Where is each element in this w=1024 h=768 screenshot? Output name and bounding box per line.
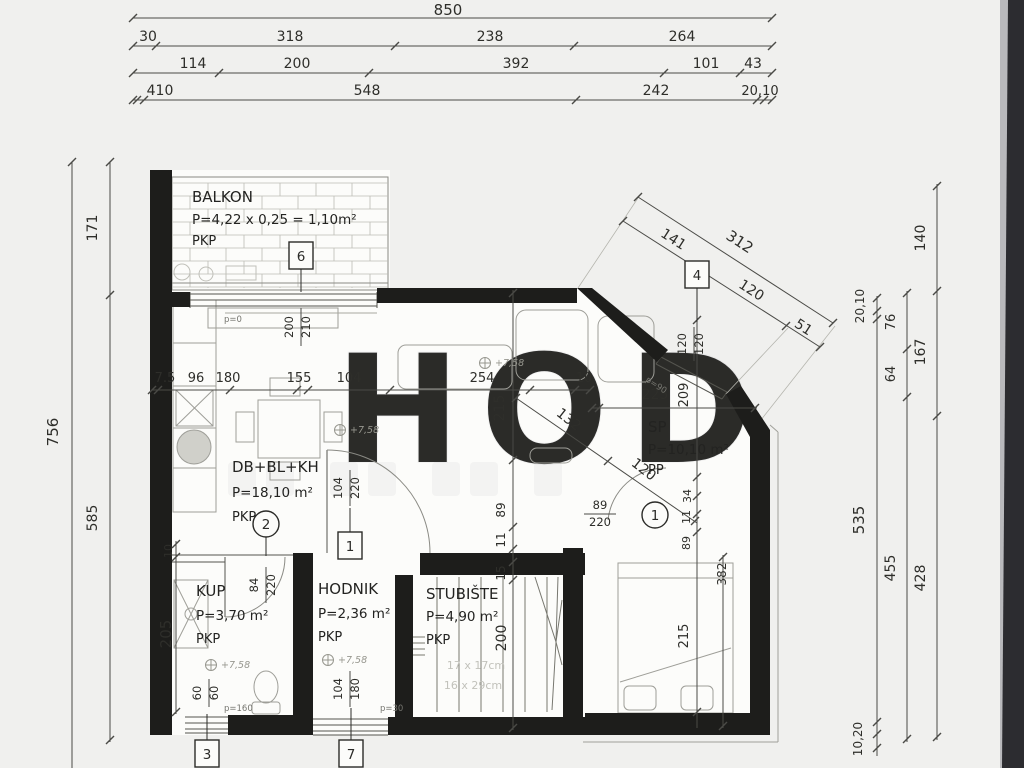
level-value: +7,58 <box>495 358 524 369</box>
wall-bottom-kup <box>228 715 313 735</box>
floor-plan-drawing: HOD <box>0 0 1024 768</box>
dim-label: 20,10 <box>741 84 778 99</box>
dim-label: 167 <box>913 339 929 366</box>
dim-label: 535 <box>850 506 868 535</box>
marker-label: 3 <box>203 747 212 763</box>
room-name: HODNIK <box>318 580 379 598</box>
dim-label: 215 <box>677 624 692 649</box>
dim-label: 15 <box>494 565 508 580</box>
door-width: 84 <box>247 578 261 593</box>
marker-label: 7 <box>347 747 356 763</box>
wall-sp-bottom <box>585 713 765 735</box>
door-width: 104 <box>331 678 345 700</box>
dim-label: 43 <box>744 56 762 72</box>
dim-label: 318 <box>277 29 304 45</box>
dim-label: 20,10 <box>853 289 867 323</box>
dim-label: 10,20 <box>851 722 865 756</box>
dim-label: 11 <box>680 510 693 524</box>
dim-label: 200 <box>494 625 510 652</box>
room-area: P=18,10 m² <box>232 485 313 501</box>
dim-label: 209 <box>677 383 692 408</box>
marker-label: 1 <box>346 539 355 555</box>
wall-top-b <box>377 288 577 303</box>
room-area: P=3,70 m² <box>196 608 268 624</box>
dim-label: 30 <box>139 29 157 45</box>
dim-label: 140 <box>913 225 929 252</box>
dim-label: 410 <box>147 83 174 99</box>
wall-left <box>150 170 172 735</box>
room-name: SP <box>648 418 667 436</box>
marker-circle-1: 1 <box>642 502 668 528</box>
dim-label: 89 <box>494 502 508 517</box>
dim-label: 215 <box>492 395 508 422</box>
dim-label: 428 <box>913 565 929 592</box>
dim-label: 455 <box>883 555 899 582</box>
room-name: DB+BL+KH <box>232 458 319 476</box>
marker-label: 1 <box>651 508 660 524</box>
door-width: 89 <box>593 498 608 512</box>
room-area: P=2,36 m² <box>318 606 390 622</box>
stair-tread-note: 16 x 29cm <box>444 679 502 692</box>
marker-circle-2: 2 <box>253 511 279 537</box>
dim-label: 238 <box>477 29 504 45</box>
dim-label: 200 <box>284 56 311 72</box>
wall-stairs-right <box>563 548 583 735</box>
marker-label: 4 <box>693 268 702 284</box>
dim-label: 242 <box>643 83 670 99</box>
dim-label: 96 <box>188 371 205 386</box>
kitchen-burner <box>177 430 211 464</box>
dim-label: 382 <box>715 563 729 586</box>
dim-label: 64 <box>884 366 899 383</box>
dim-label: 155 <box>287 371 312 386</box>
marker-label: 2 <box>262 517 271 533</box>
dim-label: 205 <box>157 620 175 649</box>
dim-label: 548 <box>354 83 381 99</box>
dim-label: 10 <box>162 544 175 558</box>
marker-label: 6 <box>297 249 306 265</box>
dim-label: 254 <box>470 371 495 386</box>
dim-label: 585 <box>85 505 101 532</box>
door-width: 104 <box>331 477 345 499</box>
dim-label: 850 <box>434 1 463 19</box>
dim-label: 89 <box>680 536 693 550</box>
dim-label: 180 <box>216 371 241 386</box>
door-height: 220 <box>589 515 611 529</box>
room-name: BALKON <box>192 188 253 206</box>
door-width: 60 <box>190 686 204 701</box>
room-tag: PP <box>648 463 664 478</box>
dim-label: 101 <box>693 56 720 72</box>
room-area: P=4,22 x 0,25 = 1,10m² <box>192 212 357 228</box>
door-width: 120 <box>675 333 689 355</box>
wall-hodnik-stairs <box>395 575 413 717</box>
door-width: 200 <box>282 316 296 338</box>
dim-label: 11 <box>494 532 508 547</box>
dim-label: 264 <box>669 29 696 45</box>
dim-label: 34 <box>681 489 694 503</box>
dim-label: 114 <box>180 56 207 72</box>
marker-box-1: 1 <box>338 532 362 559</box>
room-area: P=10,10 m² <box>648 442 729 458</box>
room-area: P=4,90 m² <box>426 609 498 625</box>
level-value: +7,58 <box>221 660 250 671</box>
wall-top-a <box>150 292 190 307</box>
scanned-floor-plan-page: HOD <box>0 0 1024 768</box>
wall-bottom-hodnik <box>388 717 585 735</box>
dim-label: 7.5 <box>155 371 176 386</box>
level-value: +7,58 <box>338 655 367 666</box>
parapet-note-p30: p=30 <box>380 704 403 714</box>
room-tag: PKP <box>426 633 450 648</box>
parapet-note-p160: p=160 <box>224 704 253 714</box>
marker-box-7: 7 <box>339 740 363 767</box>
dim-label: 76 <box>884 314 899 331</box>
scan-edge <box>1000 0 1024 768</box>
marker-box-3: 3 <box>195 740 219 767</box>
dim-label: 10 <box>576 371 593 386</box>
room-tag: PKP <box>196 632 220 647</box>
stair-riser-note: 17 x 17cm <box>447 659 505 672</box>
wall-kup-hodnik <box>293 553 313 715</box>
dim-label: 392 <box>503 56 530 72</box>
room-tag: PKP <box>318 630 342 645</box>
parapet-note-p0: p=0 <box>224 315 242 325</box>
room-tag: PKP <box>192 234 216 249</box>
marker-box-4: 4 <box>685 261 709 288</box>
level-value: +7,58 <box>350 425 379 436</box>
marker-box-6: 6 <box>289 242 313 269</box>
dim-label: 756 <box>44 418 62 447</box>
room-name: KUP <box>196 582 225 600</box>
dim-label: 104 <box>337 371 362 386</box>
dim-label: 171 <box>85 215 101 242</box>
room-name: STUBIŠTE <box>426 584 499 603</box>
